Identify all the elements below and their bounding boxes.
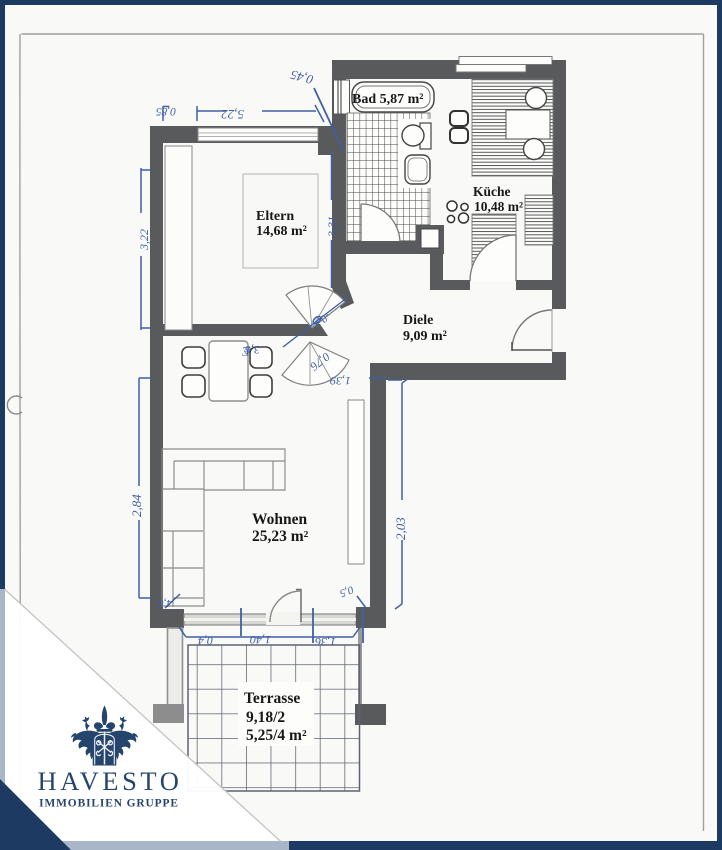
svg-text:1,40: 1,40 — [250, 633, 271, 647]
svg-text:3,22: 3,22 — [137, 229, 151, 251]
svg-text:9,09 m²: 9,09 m² — [403, 329, 447, 344]
svg-text:IMMOBILIEN GRUPPE: IMMOBILIEN GRUPPE — [39, 798, 179, 810]
svg-text:Bad 5,87 m²: Bad 5,87 m² — [352, 92, 423, 107]
svg-text:Eltern: Eltern — [256, 209, 294, 224]
svg-text:5,22: 5,22 — [221, 107, 244, 122]
svg-text:14,68 m²: 14,68 m² — [256, 224, 307, 239]
svg-text:1,36: 1,36 — [315, 635, 336, 649]
svg-text:2,03: 2,03 — [393, 517, 408, 540]
svg-text:Wohnen: Wohnen — [252, 511, 308, 528]
svg-text:0,85: 0,85 — [156, 105, 176, 117]
svg-text:3,31: 3,31 — [325, 216, 339, 238]
svg-text:9,18/2: 9,18/2 — [246, 709, 285, 726]
svg-text:0,5: 0,5 — [338, 583, 355, 599]
svg-text:E: E — [242, 344, 251, 359]
svg-text:0,4: 0,4 — [198, 634, 213, 648]
svg-text:Terrasse: Terrasse — [244, 690, 300, 707]
svg-text:5,25/4 m²: 5,25/4 m² — [246, 727, 307, 744]
svg-text:4,6: 4,6 — [158, 597, 172, 609]
svg-text:0,45: 0,45 — [288, 67, 314, 88]
svg-text:25,23 m²: 25,23 m² — [252, 528, 309, 545]
svg-text:Küche: Küche — [473, 184, 511, 199]
svg-text:1,39: 1,39 — [330, 374, 351, 388]
svg-text:HAVESTO: HAVESTO — [38, 766, 183, 796]
svg-text:10,48 m²: 10,48 m² — [474, 199, 523, 214]
svg-text:2,84: 2,84 — [129, 494, 144, 517]
svg-text:Diele: Diele — [403, 313, 433, 328]
